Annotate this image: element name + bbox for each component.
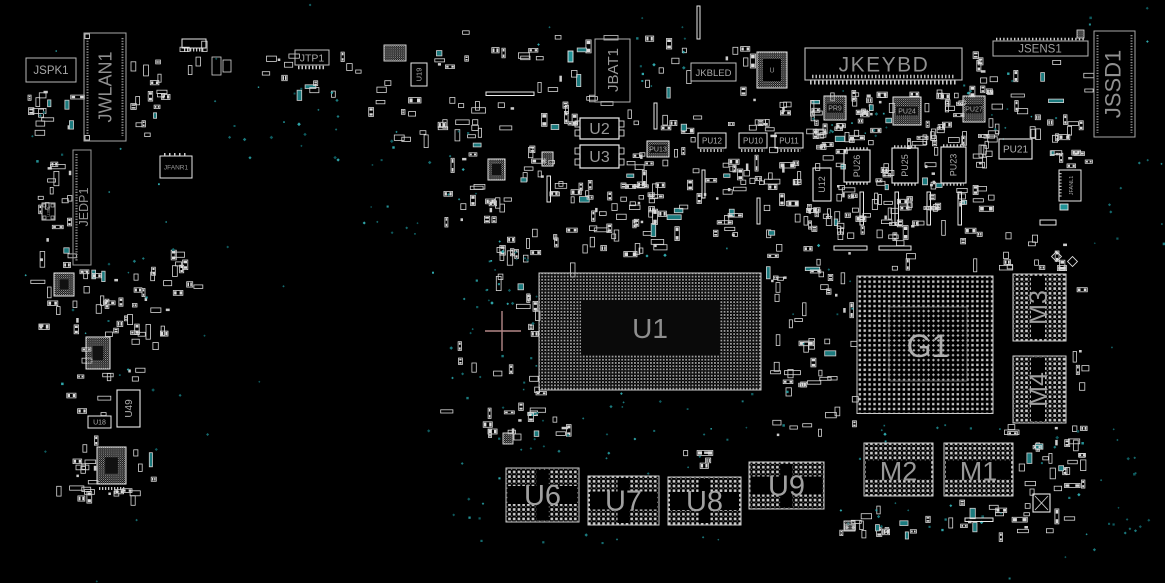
svg-text:PU12: PU12 <box>702 136 723 145</box>
svg-text:G1: G1 <box>907 328 950 364</box>
svg-text:U2: U2 <box>589 121 610 138</box>
svg-text:JKEYBD: JKEYBD <box>839 53 930 76</box>
svg-text:PU21: PU21 <box>1003 145 1028 156</box>
svg-text:PU11: PU11 <box>779 136 799 145</box>
svg-text:PU13: PU13 <box>649 146 667 153</box>
svg-text:M1: M1 <box>960 456 998 486</box>
svg-text:JEDP1: JEDP1 <box>77 188 91 227</box>
svg-text:U9: U9 <box>768 471 805 503</box>
svg-text:JSPK1: JSPK1 <box>33 65 68 77</box>
svg-text:U49: U49 <box>124 399 135 418</box>
svg-text:U1: U1 <box>632 313 668 344</box>
svg-text:U19: U19 <box>415 68 424 82</box>
svg-text:JFANL1: JFANL1 <box>1069 176 1075 196</box>
svg-text:M2: M2 <box>880 456 918 486</box>
svg-text:JKBLED: JKBLED <box>696 68 732 79</box>
svg-text:PU25: PU25 <box>900 154 910 177</box>
svg-text:JTP1: JTP1 <box>300 53 325 65</box>
svg-text:PU23: PU23 <box>949 154 959 177</box>
svg-text:U8: U8 <box>686 486 723 518</box>
svg-text:M4: M4 <box>1025 372 1053 407</box>
svg-text:U6: U6 <box>524 480 561 512</box>
svg-text:U7: U7 <box>605 486 642 518</box>
svg-text:JSENS1: JSENS1 <box>1018 44 1061 56</box>
svg-text:JFANR1: JFANR1 <box>164 164 189 171</box>
svg-text:PU24: PU24 <box>898 108 916 115</box>
svg-text:JBAT1: JBAT1 <box>605 48 622 92</box>
svg-text:PU27: PU27 <box>965 106 983 113</box>
svg-text:JSSD1: JSSD1 <box>1101 50 1126 118</box>
svg-text:PU10: PU10 <box>743 136 764 145</box>
svg-text:M3: M3 <box>1025 290 1053 325</box>
svg-text:PR9: PR9 <box>828 105 842 112</box>
svg-text:U18: U18 <box>93 419 106 426</box>
svg-text:U: U <box>769 67 774 74</box>
svg-text:U12: U12 <box>817 176 827 193</box>
svg-text:U301: U301 <box>46 206 51 217</box>
svg-text:JWLAN1: JWLAN1 <box>95 51 115 122</box>
svg-text:PU26: PU26 <box>852 155 862 178</box>
svg-text:U3: U3 <box>589 149 610 166</box>
